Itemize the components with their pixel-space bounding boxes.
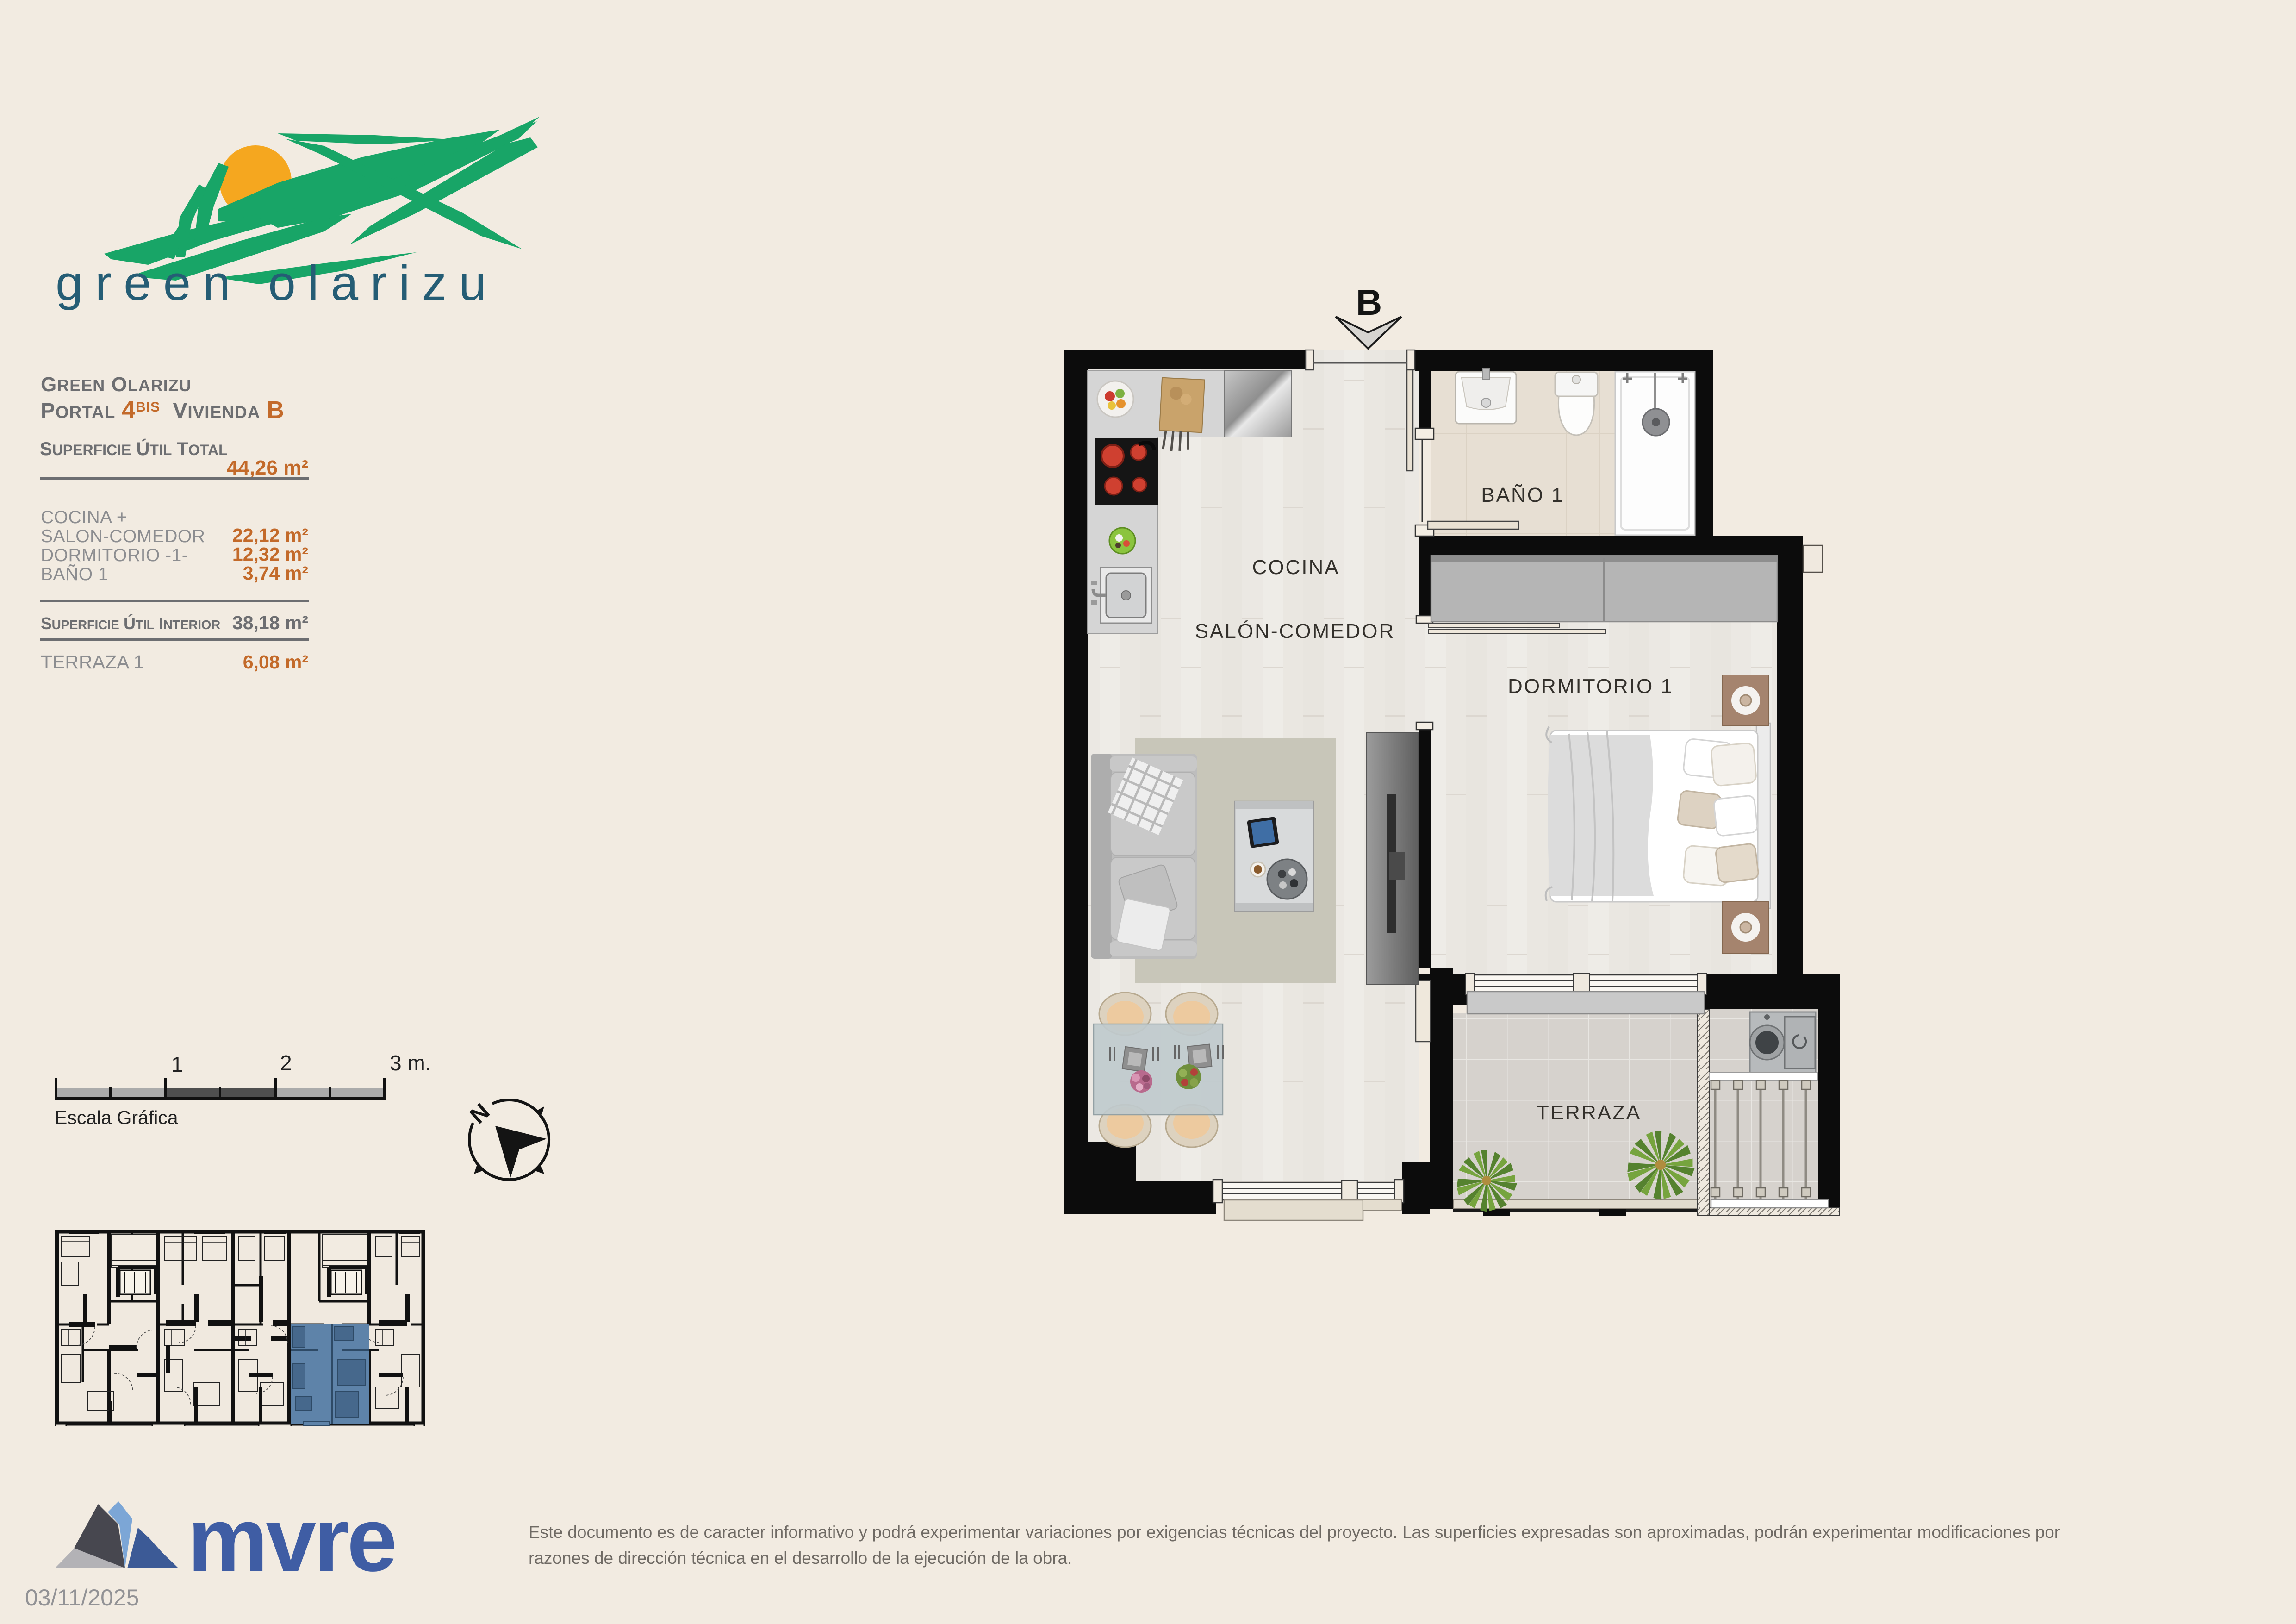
svg-text:green olarizu: green olarizu xyxy=(56,255,498,311)
svg-text:COCINA: COCINA xyxy=(1252,556,1339,579)
svg-text:N: N xyxy=(465,1098,494,1129)
svg-text:mvre: mvre xyxy=(187,1495,395,1579)
svg-text:3 m.: 3 m. xyxy=(390,1051,431,1075)
svg-text:Escala Gráfica: Escala Gráfica xyxy=(55,1107,178,1128)
svg-text:TERRAZA: TERRAZA xyxy=(1537,1101,1641,1124)
svg-text:B: B xyxy=(1356,282,1382,323)
svg-text:2: 2 xyxy=(280,1051,292,1075)
svg-text:DORMITORIO 1: DORMITORIO 1 xyxy=(1508,675,1674,698)
svg-text:SALÓN-COMEDOR: SALÓN-COMEDOR xyxy=(1195,620,1395,643)
svg-text:1: 1 xyxy=(171,1052,183,1076)
svg-text:BAÑO 1: BAÑO 1 xyxy=(1481,483,1564,506)
